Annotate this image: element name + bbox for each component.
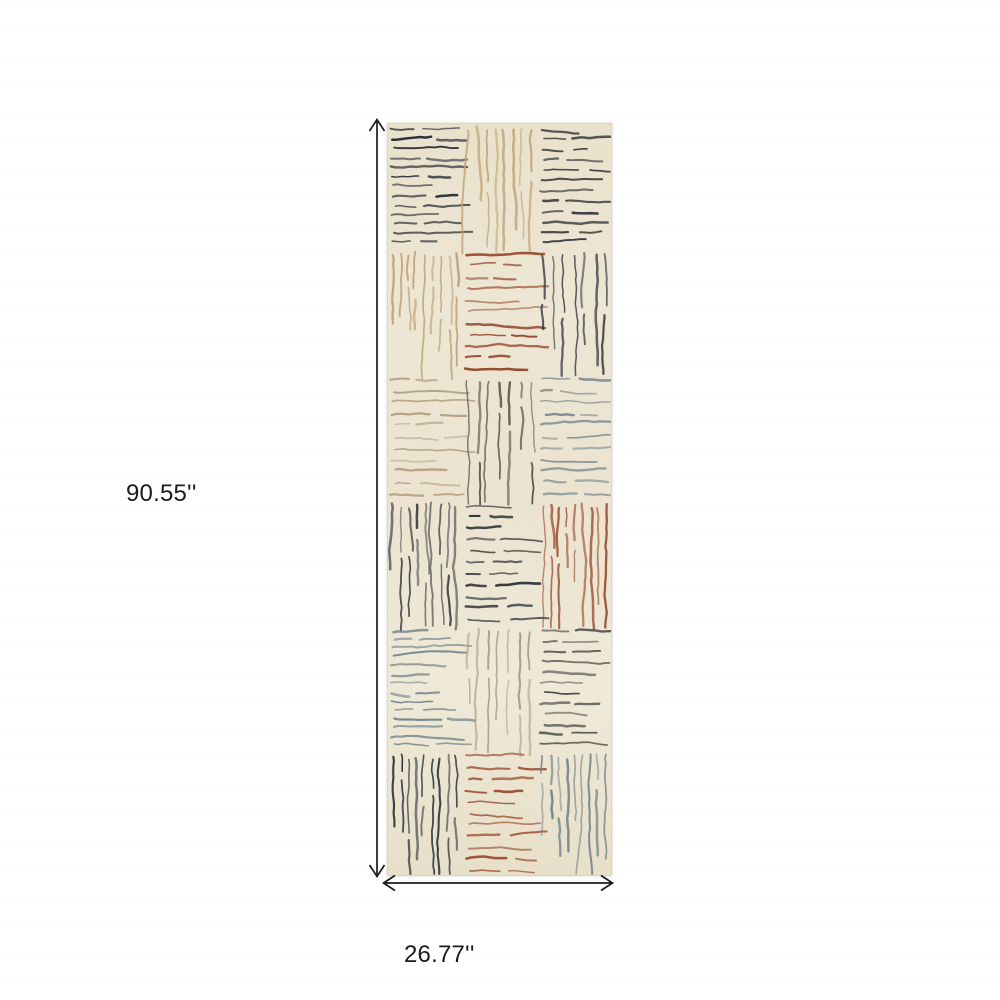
width-dimension-label: 26.77'' (404, 943, 475, 967)
rug-image (387, 123, 612, 876)
product-image: 90.55'' 26.77'' (0, 0, 1000, 1000)
height-dimension-label: 90.55'' (126, 482, 197, 506)
width-dimension-arrow (384, 876, 613, 891)
height-dimension-arrow (370, 120, 385, 877)
